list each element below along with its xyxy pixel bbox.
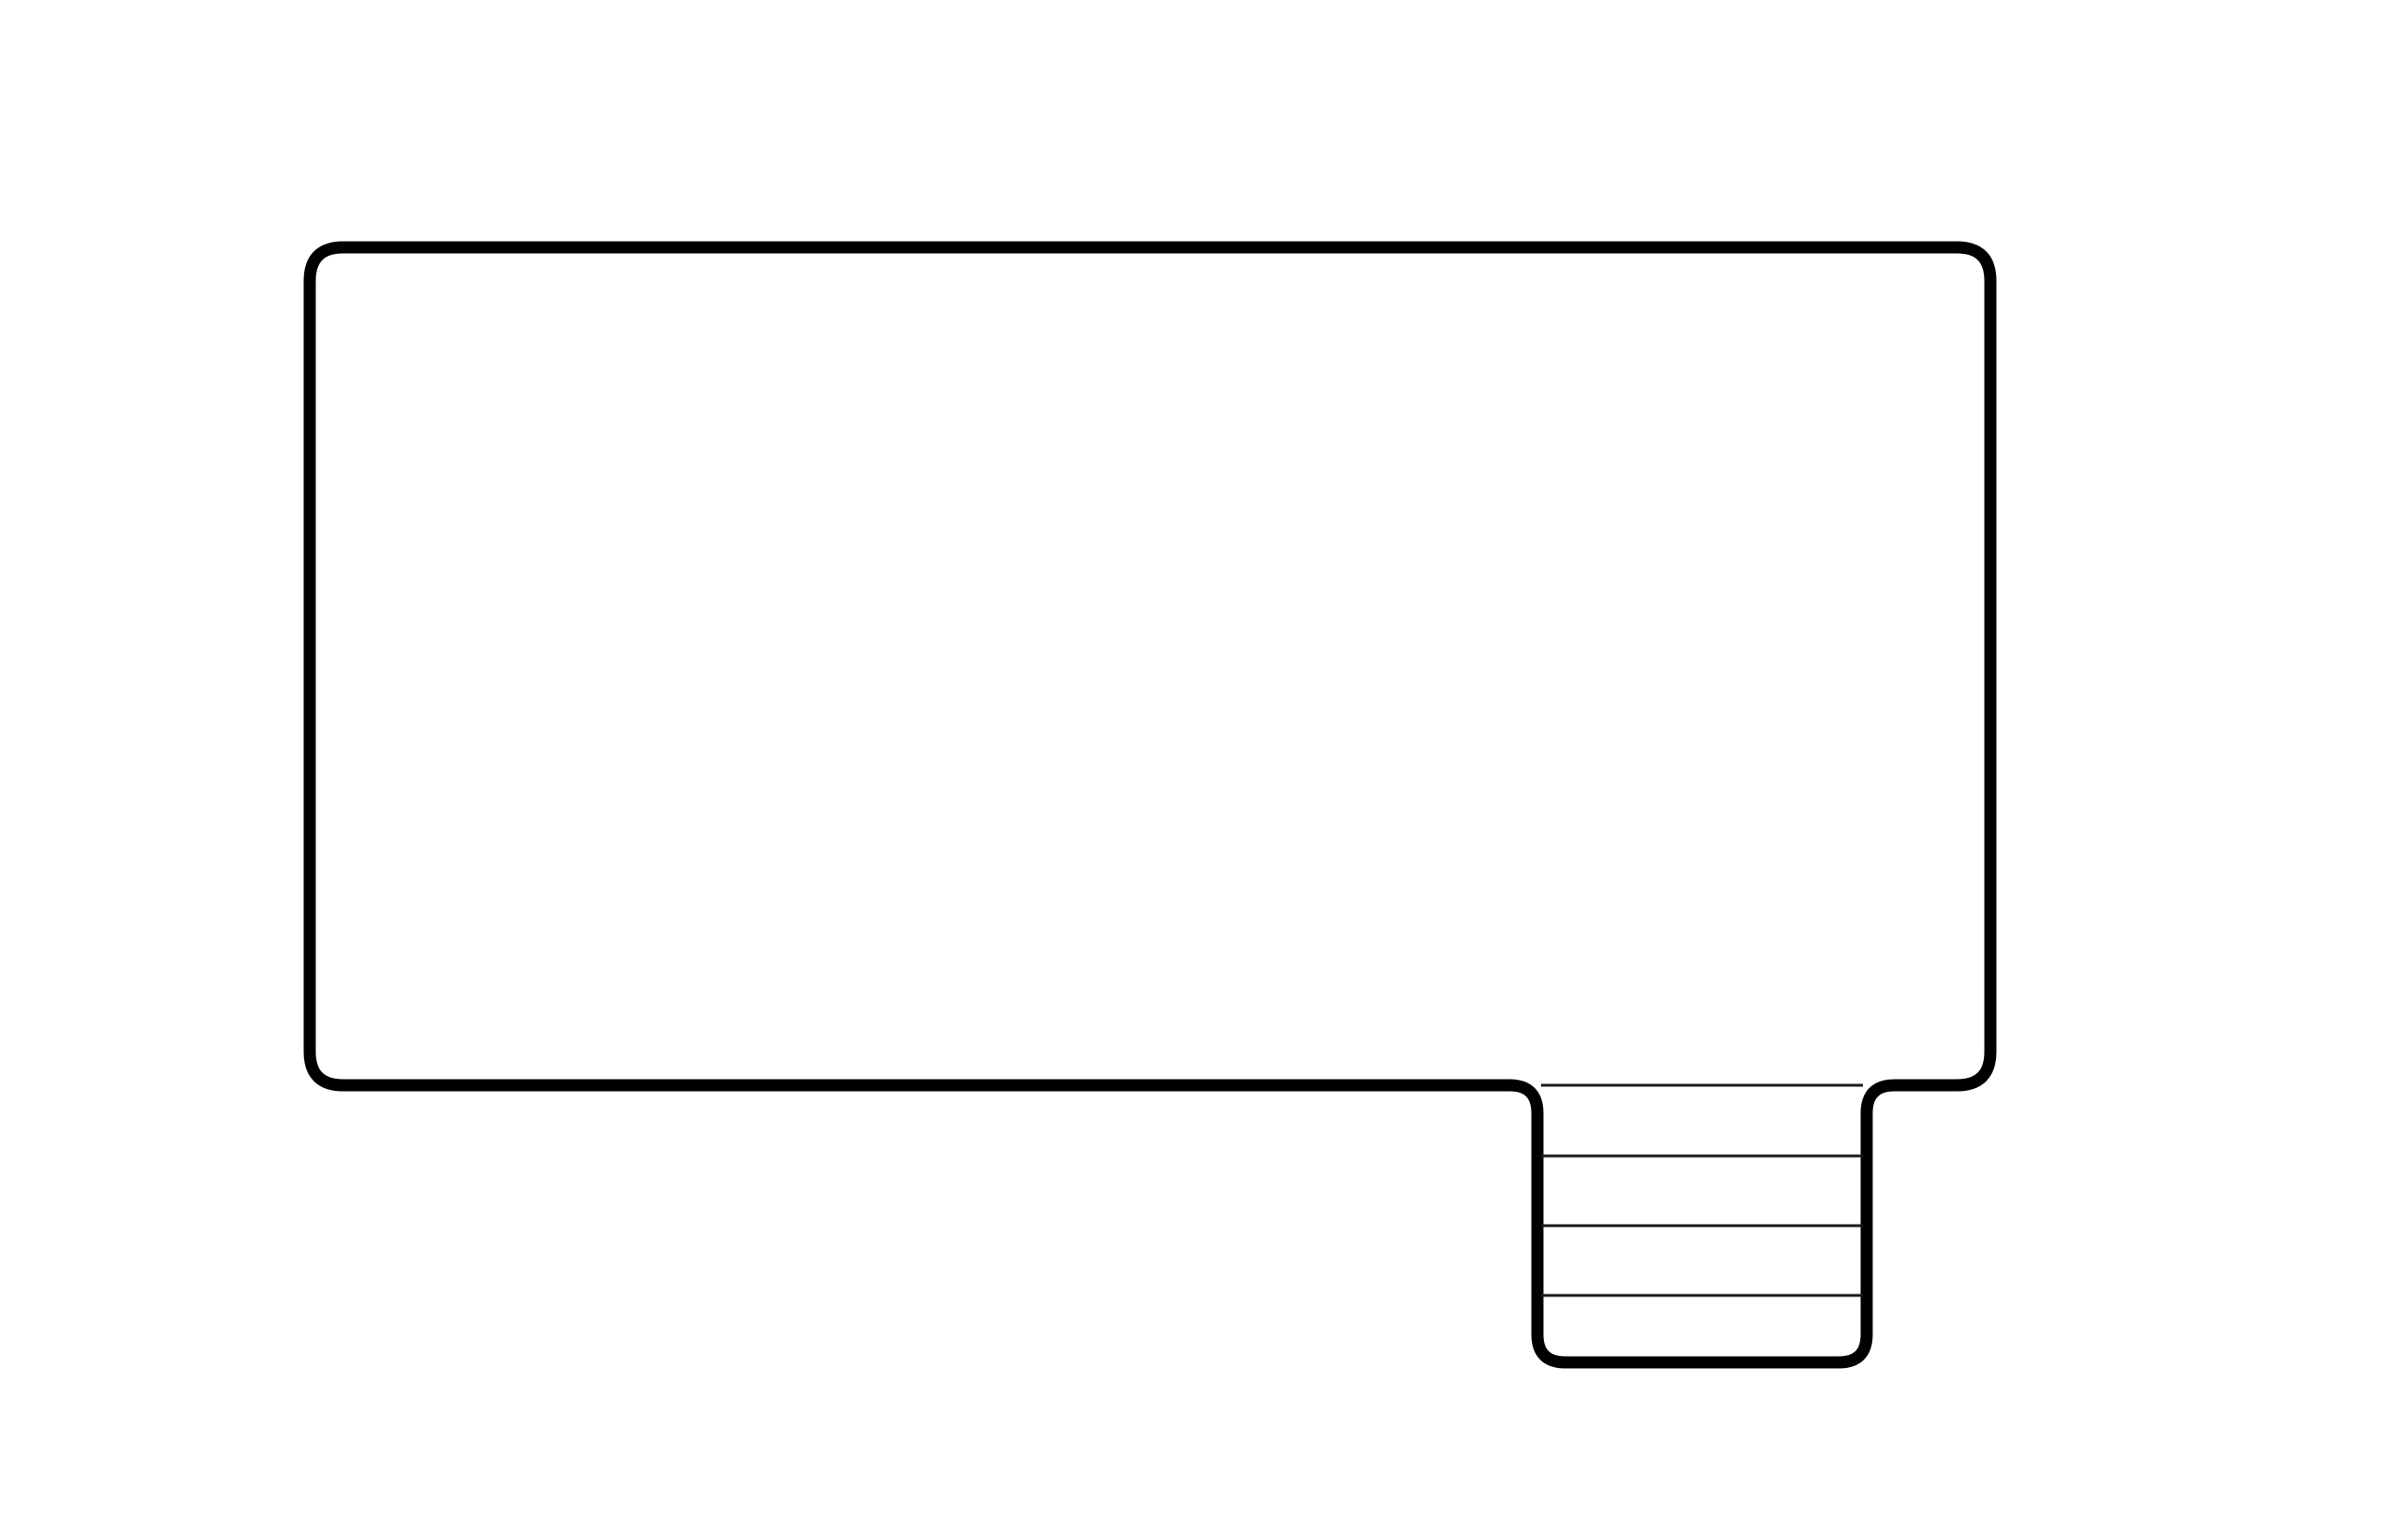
page [0,0,2381,1540]
pool-steps [1541,1085,1863,1295]
diagram-canvas [0,0,2381,1540]
pool-outline [310,247,1990,1362]
